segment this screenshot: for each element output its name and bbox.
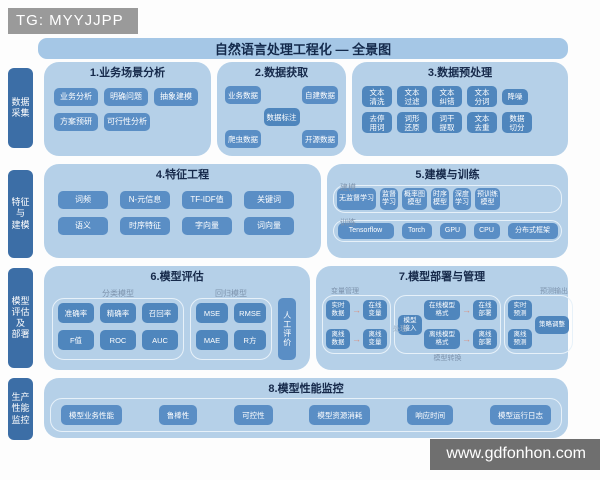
diagram-canvas: TG: MYYJJPP 自然语言处理工程化 — 全景图 数据 采集 特征 与 建… [0,0,600,480]
chip-recall: 召回率 [142,303,178,323]
chip-strategy-adjustment: 策略调整 [535,316,569,334]
section-data-acquisition: 2.数据获取 业务数据 爬虫数据 数据标注 自建数据 开源数据 [217,62,346,156]
label-prediction-output: 预测输出 [540,286,568,296]
section-data-preprocessing: 3.数据预处理 文本 清洗 文本 过滤 文本 纠错 文本 分词 降噪 去停 用词… [352,62,568,156]
chip-gpu: GPU [440,223,466,239]
chip-offline-variables: 离线 变量 [363,329,387,349]
chip-robustness: 鲁棒性 [159,405,198,425]
section-title: 6.模型评估 [50,269,304,285]
chip-cpu: CPU [474,223,500,239]
diagram-title: 自然语言处理工程化 — 全景图 [38,38,568,59]
section-title: 8.模型性能监控 [50,381,562,397]
chip-temporal-features: 时序特征 [120,217,170,235]
chip-offline-data: 离线 数据 [326,329,350,349]
sidebar-stage-production-monitoring: 生产 性能 监控 [8,378,33,440]
sidebar-stage-eval-deploy: 模型 评估 及 部署 [8,268,33,368]
section-feature-engineering: 4.特征工程 词频 N-元信息 TF-IDF值 关键词 语义 时序特征 字向量 … [44,164,321,258]
chip-lemmatization: 词形 还原 [397,112,427,133]
chip-crawler-data: 爬虫数据 [225,130,261,148]
chip-mse: MSE [196,303,228,323]
chip-probabilistic-graph-model: 概率图 模型 [402,188,427,210]
chip-business-analysis: 业务分析 [54,88,98,106]
chip-distributed-framework: 分布式框架 [508,223,558,239]
arrow-right-icon: → [351,335,362,344]
chip-controllability: 可控性 [234,405,273,425]
chip-online-model-format: 在线模型 格式 [424,300,460,320]
section-model-performance-monitoring: 8.模型性能监控 模型业务性能 鲁棒性 可控性 模型资源消耗 响应时间 模型运行… [44,378,568,438]
chip-keywords: 关键词 [244,191,294,209]
chip-roc: ROC [100,330,136,350]
chip-remove-stopwords: 去停 用词 [362,112,392,133]
chip-text-dedup: 文本 去重 [467,112,497,133]
chip-text-filtering: 文本 过滤 [397,86,427,107]
chip-model-run-logs: 模型运行日志 [490,405,551,425]
label-training: 训练 [340,217,356,228]
arrow-right-icon: → [461,335,472,344]
chip-define-problem: 明确问题 [104,88,148,106]
chip-text-cleaning: 文本 清洗 [362,86,392,107]
chip-ngram-info: N-元信息 [120,191,170,209]
chip-word-frequency: 词频 [58,191,108,209]
chip-semantics: 语义 [58,217,108,235]
chip-abstract-modeling: 抽象建模 [154,88,198,106]
section-model-deployment-management: 7.模型部署与管理 变量管理 实时 数据 → 在线 变量 离线 数据 → 离线 … [316,266,568,370]
chip-word-vectors: 词向量 [244,217,294,235]
label-modeling: 建模 [340,182,356,193]
label-processing: 处理 [393,324,407,334]
chip-realtime-data: 实时 数据 [326,300,350,320]
section-title: 2.数据获取 [223,65,340,81]
chip-offline-prediction: 离线 预测 [508,329,532,349]
chip-rsquared: R方 [234,330,266,350]
chip-supervised-learning: 监督 学习 [380,188,398,210]
label-variable-management: 变量管理 [331,286,359,296]
chip-response-time: 响应时间 [407,405,453,425]
chip-precision: 精确率 [100,303,136,323]
chip-fscore: F值 [58,330,94,350]
arrow-right-icon: → [461,306,472,315]
section-title: 7.模型部署与管理 [322,269,562,285]
chip-selfbuilt-data: 自建数据 [302,86,338,104]
chip-temporal-model: 时序 模型 [431,188,449,210]
chip-feasibility-analysis: 可行性分析 [104,113,150,131]
sidebar-stage-data-collection: 数据 采集 [8,68,33,148]
chip-rmse: RMSE [234,303,266,323]
chip-data-split: 数据 切分 [502,112,532,133]
chip-auc: AUC [142,330,178,350]
chip-opensource-data: 开源数据 [302,130,338,148]
chip-solution-preresearch: 方案预研 [54,113,98,131]
chip-manual-evaluation: 人工评价 [278,298,296,360]
chip-text-segmentation: 文本 分词 [467,86,497,107]
chip-accuracy: 准确率 [58,303,94,323]
chip-mae: MAE [196,330,228,350]
sidebar-stage-feature-modeling: 特征 与 建模 [8,170,33,258]
chip-stemming: 词干 提取 [432,112,462,133]
chip-denoise: 降噪 [502,89,528,105]
section-title: 3.数据预处理 [358,65,562,81]
chip-char-vectors: 字向量 [182,217,232,235]
chip-data-annotation: 数据标注 [264,108,300,126]
label-classification-models: 分类模型 [102,288,134,299]
section-modeling-training: 5.建模与训练 建模 无监督学习 监督 学习 概率图 模型 时序 模型 深度 学… [327,164,568,258]
bottom-watermark: www.gdfonhon.com [430,439,600,470]
chip-business-data: 业务数据 [225,86,261,104]
section-title: 5.建模与训练 [333,167,562,183]
chip-deep-learning: 深度 学习 [453,188,471,210]
chip-model-business-performance: 模型业务性能 [61,405,122,425]
section-model-evaluation: 6.模型评估 分类模型 准确率 精确率 召回率 F值 ROC AUC 回归模型 … [44,266,310,370]
chip-offline-model-format: 离线模型 格式 [424,329,460,349]
section-business-scenario-analysis: 1.业务场景分析 业务分析 明确问题 抽象建模 方案预研 可行性分析 [44,62,211,156]
arrow-right-icon: → [351,306,362,315]
label-regression-models: 回归模型 [215,288,247,299]
chip-offline-deploy: 离线 部署 [473,329,497,349]
chip-online-variables: 在线 变量 [363,300,387,320]
chip-pretrained-model: 预训练 模型 [475,188,500,210]
label-model-conversion: 模型转换 [434,353,462,363]
section-title: 1.业务场景分析 [50,65,205,81]
chip-text-correction: 文本 纠错 [432,86,462,107]
chip-model-resource-consumption: 模型资源消耗 [309,405,370,425]
top-watermark: TG: MYYJJPP [8,8,138,34]
section-title: 4.特征工程 [50,167,315,183]
chip-torch: Torch [402,223,432,239]
chip-online-deploy: 在线 部署 [473,300,497,320]
chip-realtime-prediction: 实时 预测 [508,300,532,320]
chip-tfidf-value: TF-IDF值 [182,191,232,209]
